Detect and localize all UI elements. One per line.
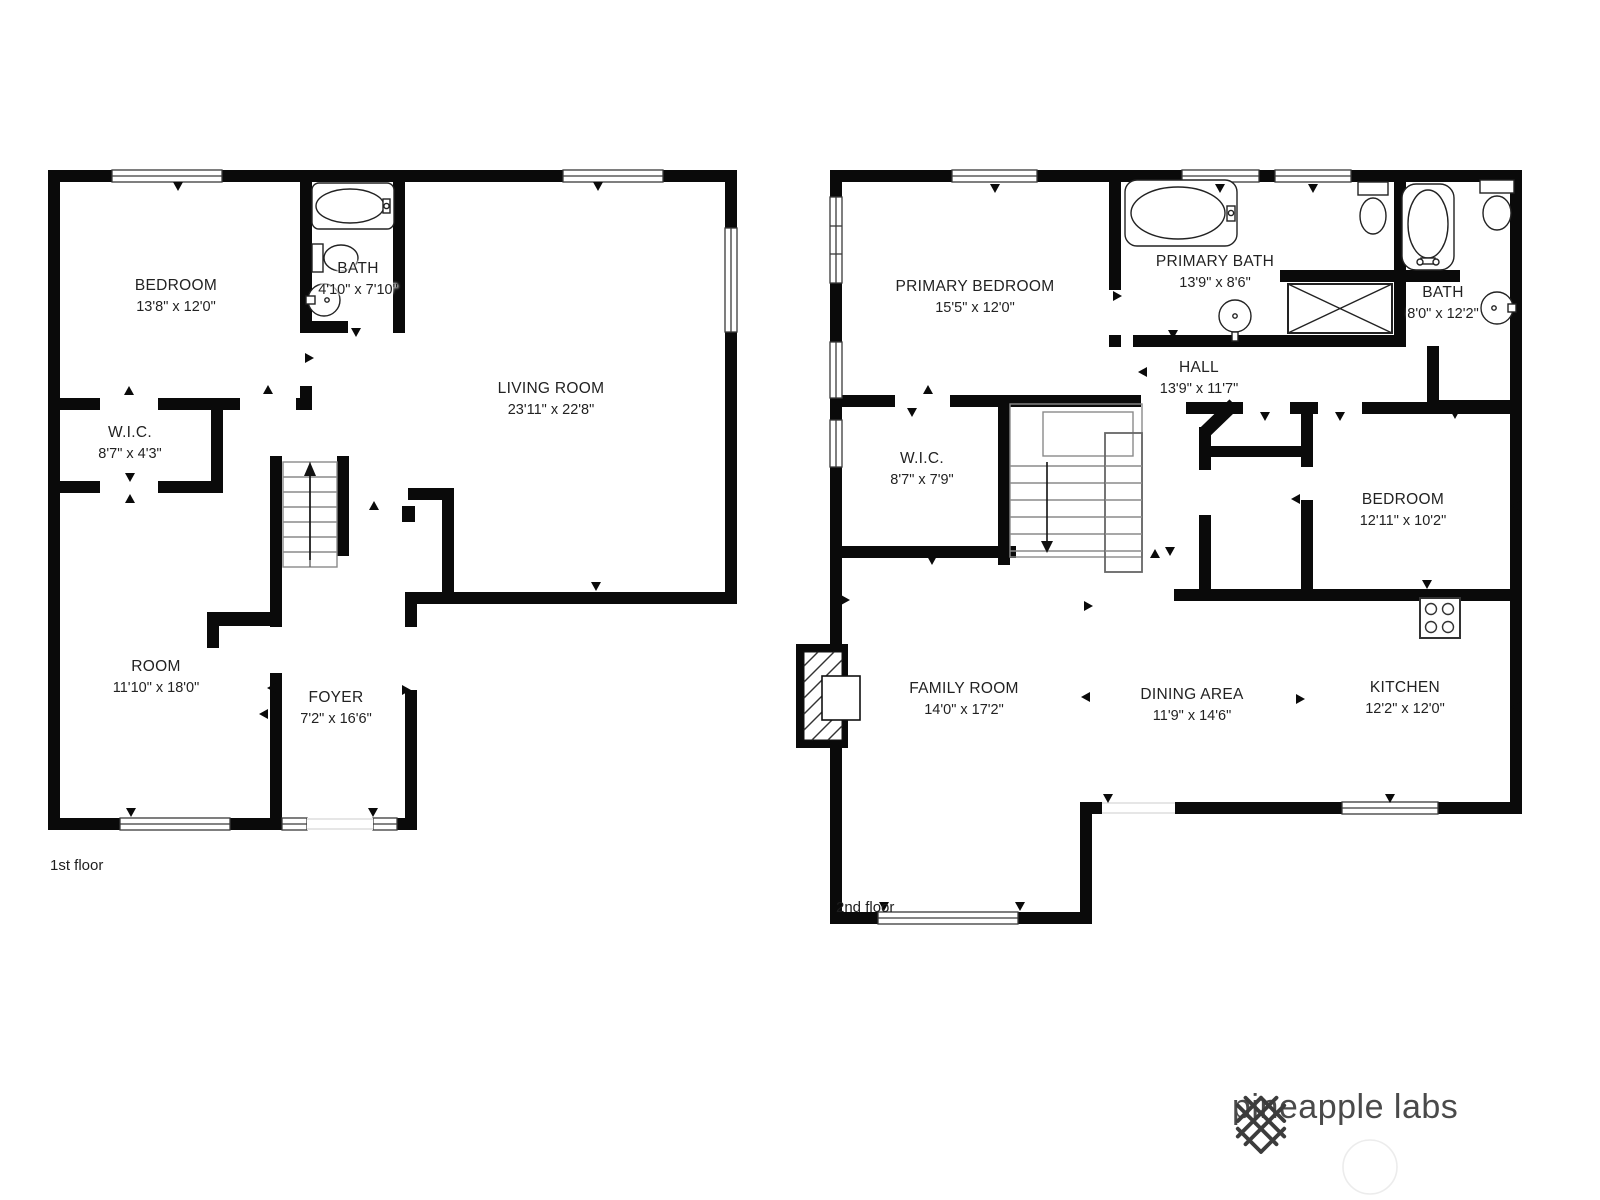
shower-icon: [1288, 284, 1392, 333]
door-arrow-icon: [1422, 580, 1432, 589]
watermark-circle: [1343, 1140, 1397, 1194]
room-dims: 8'7" x 4'3": [98, 444, 161, 464]
room-label-wic-1f: W.I.C. 8'7" x 4'3": [98, 422, 161, 464]
room-name: DINING AREA: [1140, 684, 1243, 706]
door-arrow-icon: [125, 473, 135, 482]
room-dims: 23'11" x 22'8": [498, 400, 605, 420]
door-arrow-icon: [1308, 184, 1318, 193]
room-label-bath-1f: BATH 4'10" x 7'10": [318, 258, 398, 300]
room-name: ROOM: [113, 656, 200, 678]
room-name: PRIMARY BEDROOM: [896, 276, 1055, 298]
door-arrow-icon: [1260, 412, 1270, 421]
room-label-kitchen: KITCHEN 12'2" x 12'0": [1365, 677, 1445, 719]
door-arrow-icon: [1296, 694, 1305, 704]
door-arrow-icon: [1084, 601, 1093, 611]
room-label-primary-bath: PRIMARY BATH 13'9" x 8'6": [1156, 251, 1274, 293]
floor1-stairs: [283, 462, 337, 567]
room-dims: 15'5" x 12'0": [896, 298, 1055, 318]
primary-toilet-icon: [1358, 182, 1388, 234]
door-arrow-icon: [305, 353, 314, 363]
floor2-stairs: [1010, 404, 1142, 572]
door-arrow-icon: [126, 808, 136, 817]
fireplace-icon: [796, 644, 860, 748]
room-dims: 14'0" x 17'2": [909, 700, 1019, 720]
bathtub-icon: [312, 183, 394, 229]
door-arrow-icon: [1015, 902, 1025, 911]
door-arrow-icon: [125, 494, 135, 503]
room-name: HALL: [1160, 357, 1238, 379]
door-arrow-icon: [1103, 794, 1113, 803]
floor2-door-openings: [1102, 802, 1175, 814]
room-label-foyer: FOYER 7'2" x 16'6": [300, 687, 371, 729]
room-label-wic-2f: W.I.C. 8'7" x 7'9": [890, 448, 953, 490]
room-name: LIVING ROOM: [498, 378, 605, 400]
stove-icon: [1420, 598, 1460, 638]
room-dims: 7'2" x 16'6": [300, 709, 371, 729]
room-dims: 8'0" x 12'2": [1407, 304, 1478, 324]
room-label-bedroom-1f: BEDROOM 13'8" x 12'0": [135, 275, 217, 317]
door-arrow-icon: [369, 501, 379, 510]
room-label-room: ROOM 11'10" x 18'0": [113, 656, 200, 698]
room-name: BEDROOM: [135, 275, 217, 297]
room-dims: 8'7" x 7'9": [890, 470, 953, 490]
room-label-bedroom-2f: BEDROOM 12'11" x 10'2": [1360, 489, 1447, 531]
room-name: BATH: [1407, 282, 1478, 304]
room-label-dining-area: DINING AREA 11'9" x 14'6": [1140, 684, 1243, 726]
door-arrow-icon: [1335, 412, 1345, 421]
door-arrow-icon: [1138, 367, 1147, 377]
door-arrow-icon: [841, 595, 850, 605]
door-arrow-icon: [1150, 549, 1160, 558]
door-arrow-icon: [591, 582, 601, 591]
room-dims: 12'11" x 10'2": [1360, 511, 1447, 531]
door-arrow-icon: [351, 328, 361, 337]
floor1-door-openings: [307, 818, 373, 830]
door-arrow-icon: [1291, 494, 1300, 504]
pineapple-lattice-icon: [1232, 1088, 1290, 1154]
room-label-bath-2f: BATH 8'0" x 12'2": [1407, 282, 1478, 324]
room-name: W.I.C.: [98, 422, 161, 444]
room-label-hall: HALL 13'9" x 11'7": [1160, 357, 1238, 399]
room-dims: 12'2" x 12'0": [1365, 699, 1445, 719]
door-arrow-icon: [1165, 547, 1175, 556]
door-arrow-icon: [907, 408, 917, 417]
bath2-toilet-icon: [1480, 180, 1514, 230]
floorplan-canvas: BEDROOM 13'8" x 12'0" BATH 4'10" x 7'10"…: [0, 0, 1600, 1200]
room-name: BATH: [318, 258, 398, 280]
room-dims: 13'8" x 12'0": [135, 297, 217, 317]
room-name: BEDROOM: [1360, 489, 1447, 511]
floorplan-drawing: [0, 0, 1600, 1200]
room-dims: 11'10" x 18'0": [113, 678, 200, 698]
room-name: PRIMARY BATH: [1156, 251, 1274, 273]
door-arrow-icon: [263, 385, 273, 394]
floor1-caption: 1st floor: [50, 857, 103, 874]
bath2-tub-icon: [1402, 184, 1454, 270]
floor2-caption: 2nd floor: [836, 899, 894, 916]
room-dims: 11'9" x 14'6": [1140, 706, 1243, 726]
room-label-living-room: LIVING ROOM 23'11" x 22'8": [498, 378, 605, 420]
door-arrow-icon: [124, 386, 134, 395]
door-arrow-icon: [927, 556, 937, 565]
door-arrow-icon: [368, 808, 378, 817]
door-arrow-icon: [990, 184, 1000, 193]
room-name: FOYER: [300, 687, 371, 709]
room-dims: 13'9" x 8'6": [1156, 273, 1274, 293]
primary-sink-icon: [1219, 300, 1251, 341]
room-dims: 4'10" x 7'10": [318, 280, 398, 300]
room-name: FAMILY ROOM: [909, 678, 1019, 700]
door-arrow-icon: [173, 182, 183, 191]
room-label-family-room: FAMILY ROOM 14'0" x 17'2": [909, 678, 1019, 720]
room-dims: 13'9" x 11'7": [1160, 379, 1238, 399]
room-label-primary-bedroom: PRIMARY BEDROOM 15'5" x 12'0": [896, 276, 1055, 318]
door-arrow-icon: [923, 385, 933, 394]
door-arrow-icon: [1450, 410, 1460, 419]
door-arrow-icon: [259, 709, 268, 719]
pineapple-labs-logo: pineapple labs: [1232, 1088, 1458, 1127]
room-name: W.I.C.: [890, 448, 953, 470]
door-arrow-icon: [593, 182, 603, 191]
door-arrow-icon: [1081, 692, 1090, 702]
door-arrow-icon: [1113, 291, 1122, 301]
room-name: KITCHEN: [1365, 677, 1445, 699]
